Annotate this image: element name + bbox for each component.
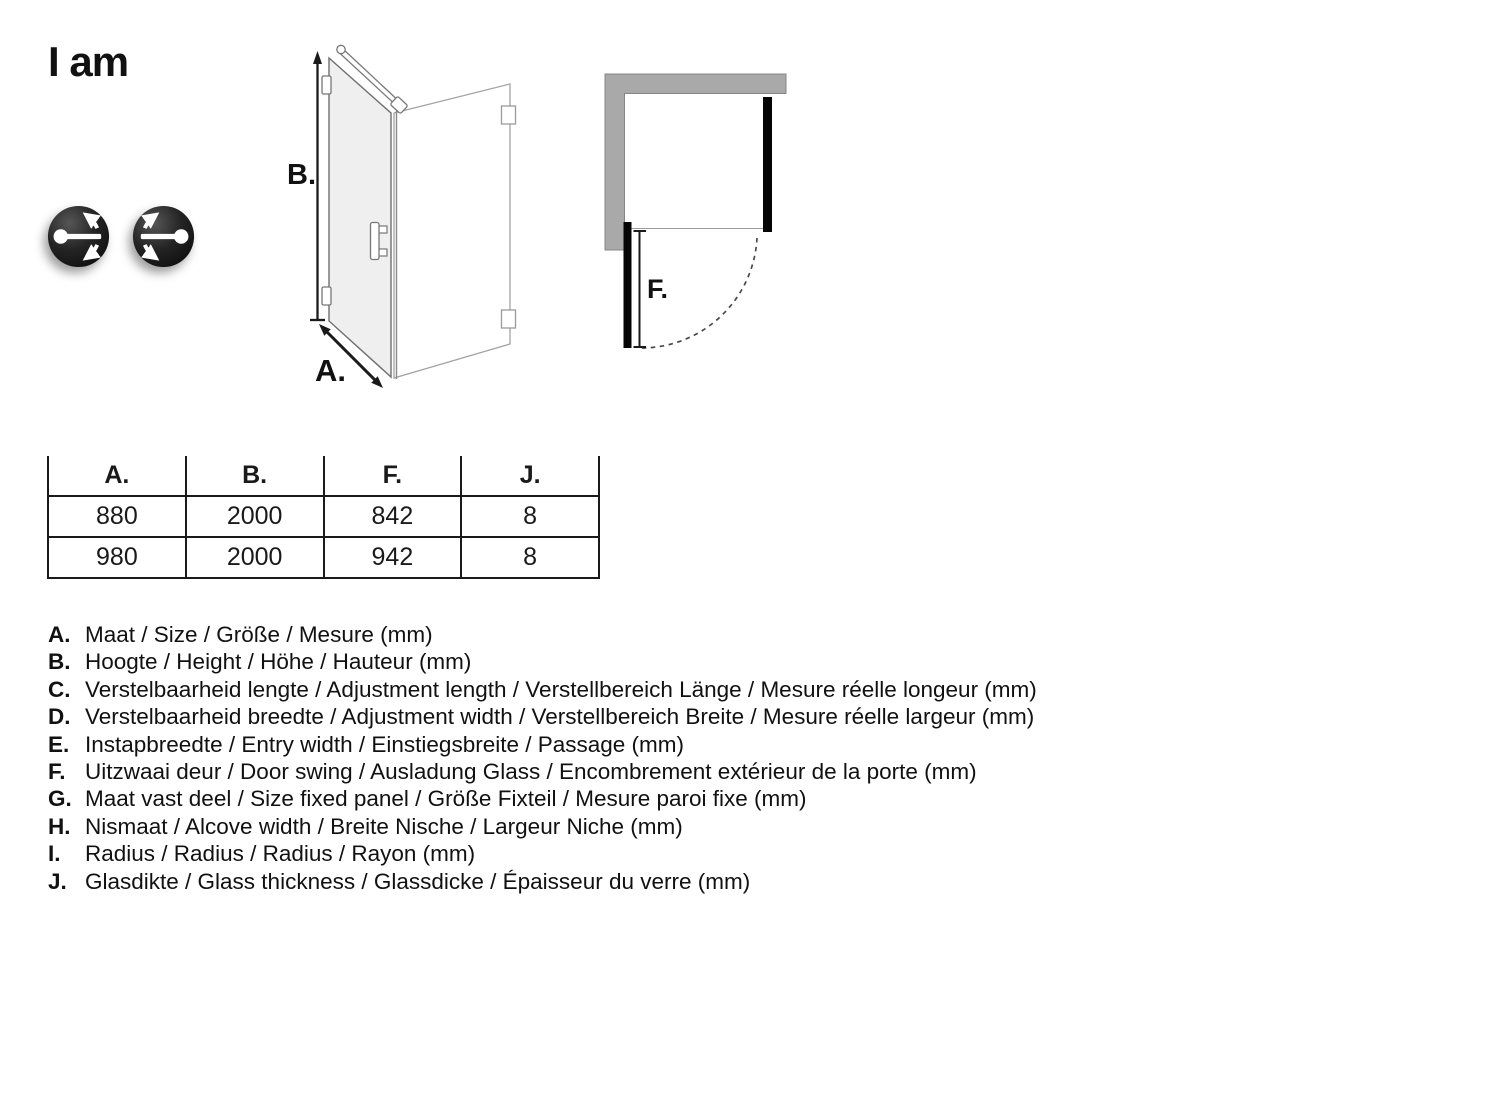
legend-item-a: A. Maat / Size / Größe / Mesure (mm) [48,621,1248,648]
hinge-dot [174,229,188,243]
legend-letter: F. [48,758,85,785]
size-table: A. B. F. J. 880 2000 842 8 980 2000 942 … [47,456,600,579]
wall-bracket-bottom [502,310,516,328]
column-header-a: A. [48,456,186,496]
door-hinge-left-swing-icon [45,203,112,270]
height-dimension-label: B. [287,159,316,191]
support-bar-wall-mount [337,45,345,53]
legend-letter: E. [48,731,85,758]
table-cell: 880 [48,496,186,537]
height-dimension-arrow [313,51,322,64]
legend-text: Hoogte / Height / Höhe / Hauteur (mm) [85,648,471,675]
wall-corner [605,74,786,250]
table-row: 880 2000 842 8 [48,496,599,537]
legend-letter: A. [48,621,85,648]
column-header-b: B. [186,456,324,496]
legend-text: Maat / Size / Größe / Mesure (mm) [85,621,433,648]
column-header-j: J. [461,456,599,496]
legend-letter: J. [48,868,85,895]
legend-letter: G. [48,785,85,812]
legend-letter: C. [48,676,85,703]
legend-item-h: H. Nismaat / Alcove width / Breite Nisch… [48,813,1248,840]
legend-text: Maat vast deel / Size fixed panel / Größ… [85,785,807,812]
table-cell: 8 [461,496,599,537]
legend-letter: B. [48,648,85,675]
legend-text: Verstelbaarheid lengte / Adjustment leng… [85,676,1037,703]
legend-text: Glasdikte / Glass thickness / Glassdicke… [85,868,750,895]
door-hinge-top [322,76,331,94]
door-glass [329,58,391,377]
legend-item-d: D. Verstelbaarheid breedte / Adjustment … [48,703,1248,730]
legend-text: Verstelbaarheid breedte / Adjustment wid… [85,703,1034,730]
size-table-header-row: A. B. F. J. [48,456,599,496]
legend-text: Uitzwaai deur / Door swing / Ausladung G… [85,758,977,785]
table-row: 980 2000 942 8 [48,537,599,578]
legend-letter: D. [48,703,85,730]
door-handle [371,223,380,260]
width-dimension-label: A. [315,353,346,388]
legend-letter: H. [48,813,85,840]
legend-item-f: F. Uitzwaai deur / Door swing / Ausladun… [48,758,1248,785]
column-header-f: F. [324,456,462,496]
isometric-shower-diagram: B. A. [280,40,580,400]
fixed-panel-plan [763,97,772,232]
spec-sheet-page: I am [0,0,1500,1113]
brand-logo: I am [48,38,128,86]
door-hinge-right-swing-icon [130,203,197,270]
table-cell: 980 [48,537,186,578]
legend-item-b: B. Hoogte / Height / Höhe / Hauteur (mm) [48,648,1248,675]
legend-item-e: E. Instapbreedte / Entry width / Einstie… [48,731,1248,758]
legend-text: Nismaat / Alcove width / Breite Nische /… [85,813,683,840]
table-cell: 2000 [186,537,324,578]
door-hinge-bottom [322,287,331,305]
legend-item-i: I. Radius / Radius / Radius / Rayon (mm) [48,840,1248,867]
table-cell: 8 [461,537,599,578]
open-door-plan [624,222,632,348]
legend-item-g: G. Maat vast deel / Size fixed panel / G… [48,785,1248,812]
legend-item-c: C. Verstelbaarheid lengte / Adjustment l… [48,676,1248,703]
dimension-legend: A. Maat / Size / Größe / Mesure (mm) B. … [48,621,1248,895]
side-panel-glass [394,84,510,378]
door-swing-label: F. [647,274,668,304]
top-view-diagram: F. [595,60,805,360]
wall-bracket-top [502,106,516,124]
table-cell: 2000 [186,496,324,537]
hinge-dot [54,229,68,243]
table-cell: 942 [324,537,462,578]
legend-text: Instapbreedte / Entry width / Einstiegsb… [85,731,684,758]
table-cell: 842 [324,496,462,537]
legend-item-j: J. Glasdikte / Glass thickness / Glassdi… [48,868,1248,895]
legend-letter: I. [48,840,85,867]
legend-text: Radius / Radius / Radius / Rayon (mm) [85,840,475,867]
